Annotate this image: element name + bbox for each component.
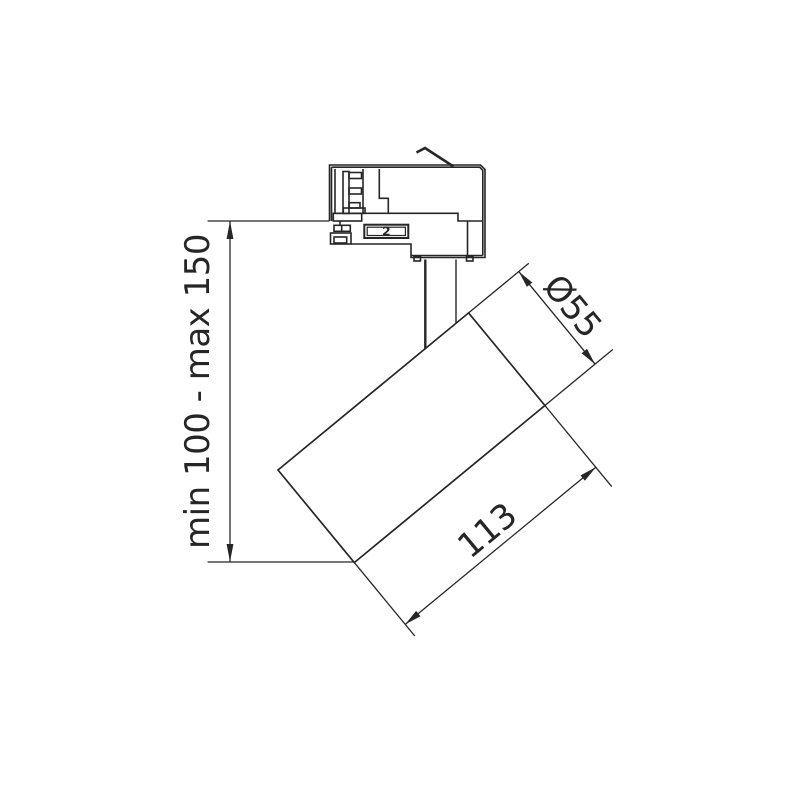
- contact-tooth-middle: [349, 188, 362, 194]
- plate-foot-right: [467, 257, 474, 262]
- adapter-divider-2: [379, 169, 388, 213]
- contact-comb-spine: [343, 172, 349, 214]
- height-arrowhead-bottom: [227, 544, 234, 562]
- adapter-inner-edge: [332, 167, 483, 255]
- height-dimension-label: min 100 - max 150: [178, 234, 218, 549]
- diameter-ext-line-1: [469, 263, 529, 313]
- height-arrowhead-top: [227, 221, 234, 239]
- contact-tooth-top: [349, 173, 362, 179]
- diameter-ext-line-2: [545, 349, 613, 405]
- track-adapter: [330, 148, 486, 261]
- plate-foot-left: [414, 257, 421, 262]
- clip-lower-inner: [334, 237, 347, 243]
- length-ext-line-1: [354, 563, 415, 636]
- technical-drawing: min 100 - max 150 Ø55 113 2: [0, 0, 800, 800]
- adapter-lever: [417, 148, 454, 167]
- adapter-marking-label: 2: [382, 224, 391, 239]
- adapter-cavity-bottom: [335, 213, 483, 221]
- height-dimension: [208, 221, 355, 562]
- drawing-canvas: min 100 - max 150 Ø55 113 2: [0, 0, 800, 800]
- contact-block: [333, 213, 361, 221]
- length-ext-line-2: [545, 406, 612, 487]
- diameter-dimension-label: Ø55: [535, 267, 609, 345]
- adapter-clips: [331, 221, 352, 244]
- adapter-contact-comb: [333, 172, 365, 222]
- length-dimension-label: 113: [450, 495, 524, 566]
